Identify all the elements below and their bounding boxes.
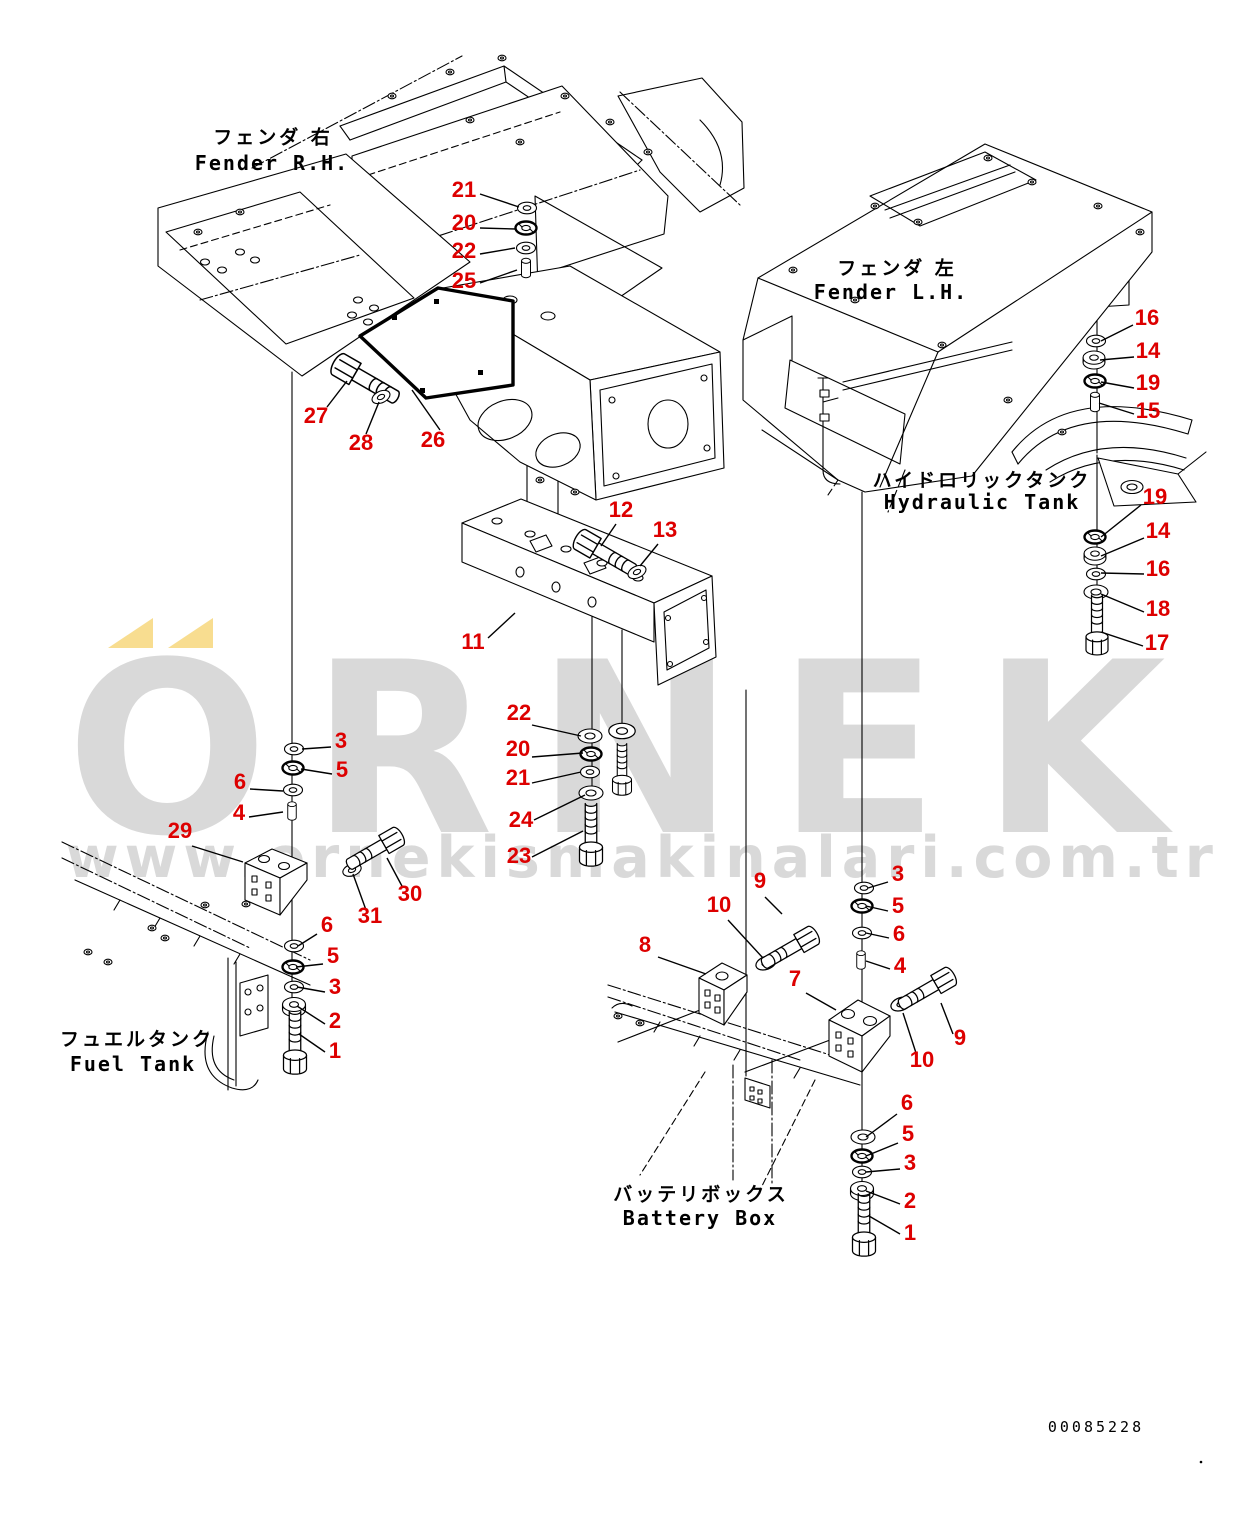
fender-rh-label-en: Fender R.H. [195, 151, 349, 175]
callout-5a: 5 [336, 757, 348, 782]
fuel-tank-label-en: Fuel Tank [70, 1052, 196, 1076]
callout-21: 21 [452, 177, 476, 202]
callout-28: 28 [349, 430, 373, 455]
callout-10b: 10 [910, 1047, 934, 1072]
callout-2a: 2 [329, 1008, 341, 1033]
callout-5c: 5 [892, 893, 904, 918]
callout-13: 13 [653, 517, 677, 542]
hydraulic-tank-label-jp: ハイドロリックタンク [873, 466, 1092, 493]
doc-number: 00085228 [1048, 1418, 1144, 1436]
callout-6c: 6 [893, 921, 905, 946]
callout-4a: 4 [233, 800, 246, 825]
stray-dot [1200, 1461, 1203, 1464]
callout-19a: 19 [1136, 370, 1160, 395]
fender-lh-label-en: Fender L.H. [814, 280, 968, 304]
callout-5b: 5 [327, 943, 339, 968]
watermark-url-text: www.ornekismakinalari.com.tr [66, 825, 1219, 891]
callout-10a: 10 [707, 892, 731, 917]
callout-1b: 1 [904, 1220, 916, 1245]
callout-20b: 20 [506, 736, 530, 761]
bracket-part-8 [699, 963, 747, 1025]
battery-box-label-jp: バッテリボックス [613, 1180, 788, 1207]
callout-14a: 14 [1136, 338, 1161, 363]
bracket-part-7 [829, 1000, 890, 1072]
callout-16b: 16 [1146, 556, 1170, 581]
callout-12: 12 [609, 497, 633, 522]
callout-29: 29 [168, 818, 192, 843]
callout-25: 25 [452, 268, 476, 293]
callout-21b: 21 [506, 765, 530, 790]
fender-lh-drawing [743, 144, 1152, 512]
callout-31: 31 [358, 903, 382, 928]
parts-diagram-page: ORNEK www.ornekismakinalari.com.tr [0, 0, 1243, 1513]
callout-8: 8 [639, 932, 651, 957]
callout-3c: 3 [892, 861, 904, 886]
callout-9b: 9 [954, 1025, 966, 1050]
callout-23: 23 [507, 843, 531, 868]
battery-box-drawing [608, 985, 862, 1190]
callout-30: 30 [398, 881, 422, 906]
callout-18: 18 [1146, 596, 1170, 621]
watermark: ORNEK www.ornekismakinalari.com.tr [66, 612, 1219, 891]
callout-15: 15 [1136, 398, 1160, 423]
callout-27: 27 [304, 403, 328, 428]
battery-box-label-en: Battery Box [623, 1206, 777, 1230]
callout-3d: 3 [904, 1150, 916, 1175]
callout-9a: 9 [754, 868, 766, 893]
callout-24: 24 [509, 807, 534, 832]
callout-1a: 1 [329, 1038, 341, 1063]
callout-14b: 14 [1146, 518, 1171, 543]
bracket-part-29 [245, 849, 307, 915]
hydraulic-tank-label-en: Hydraulic Tank [884, 490, 1081, 514]
fender-lh-label-jp: フェンダ 左 [837, 254, 957, 281]
callout-6d: 6 [901, 1090, 913, 1115]
callout-20: 20 [452, 210, 476, 235]
diagram-canvas: ORNEK www.ornekismakinalari.com.tr [0, 0, 1243, 1513]
callout-3b: 3 [329, 974, 341, 999]
fender-rh-label-jp: フェンダ 右 [213, 123, 333, 150]
callout-6b: 6 [321, 912, 333, 937]
callout-4b: 4 [894, 953, 907, 978]
callout-7: 7 [789, 966, 801, 991]
callout-11: 11 [461, 629, 484, 654]
callout-2b: 2 [904, 1188, 916, 1213]
callout-17: 17 [1145, 630, 1169, 655]
callout-16a: 16 [1135, 305, 1159, 330]
callout-5d: 5 [902, 1121, 914, 1146]
callout-26: 26 [421, 427, 445, 452]
callout-19b: 19 [1143, 484, 1167, 509]
callout-6a: 6 [234, 769, 246, 794]
callout-22b: 22 [507, 700, 531, 725]
callout-3a: 3 [335, 728, 347, 753]
fuel-tank-label-jp: フュエルタンク [60, 1025, 214, 1052]
callout-22: 22 [452, 238, 476, 263]
